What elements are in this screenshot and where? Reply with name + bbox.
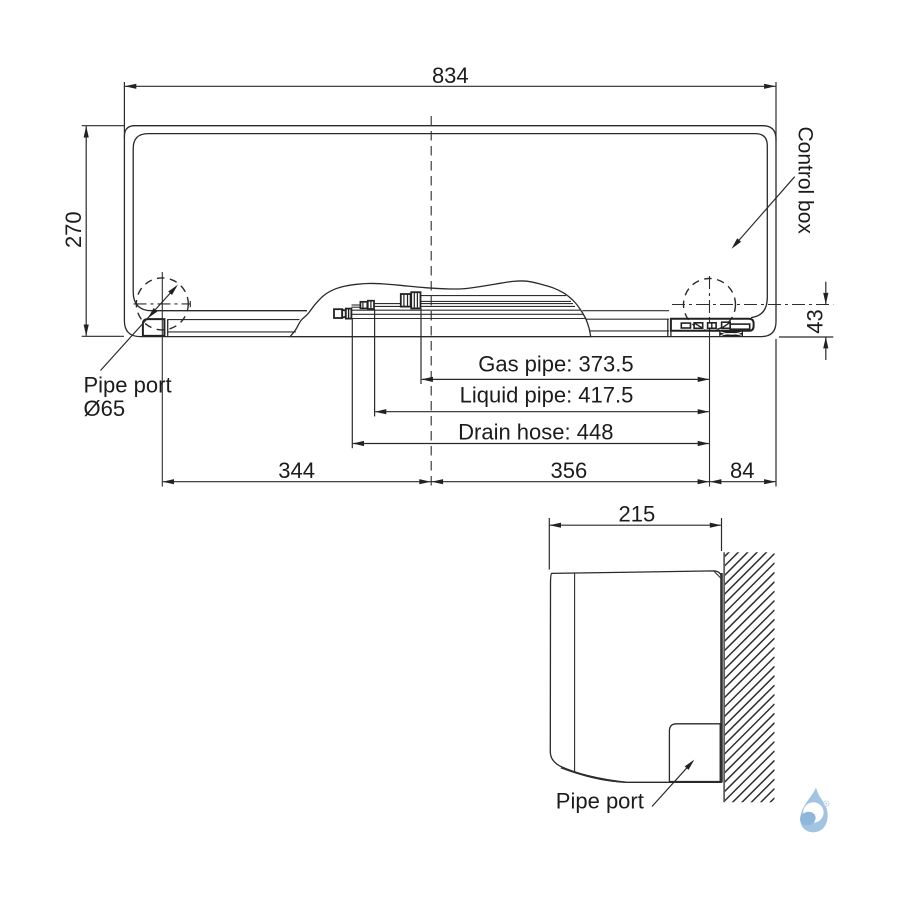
svg-text:215: 215 — [619, 502, 656, 527]
svg-text:Liquid pipe: 417.5: Liquid pipe: 417.5 — [460, 383, 634, 408]
svg-text:834: 834 — [432, 63, 469, 88]
svg-text:Ø65: Ø65 — [84, 396, 126, 421]
svg-text:Gas pipe: 373.5: Gas pipe: 373.5 — [478, 352, 633, 377]
svg-text:344: 344 — [278, 458, 315, 483]
svg-text:Drain hose: 448: Drain hose: 448 — [458, 420, 613, 445]
svg-text:Control box: Control box — [794, 127, 817, 235]
svg-text:356: 356 — [551, 458, 588, 483]
svg-text:84: 84 — [730, 458, 754, 483]
svg-text:Pipe port: Pipe port — [556, 789, 644, 814]
svg-text:Pipe port: Pipe port — [84, 373, 172, 398]
svg-text:270: 270 — [61, 211, 86, 248]
svg-text:43: 43 — [803, 309, 828, 333]
